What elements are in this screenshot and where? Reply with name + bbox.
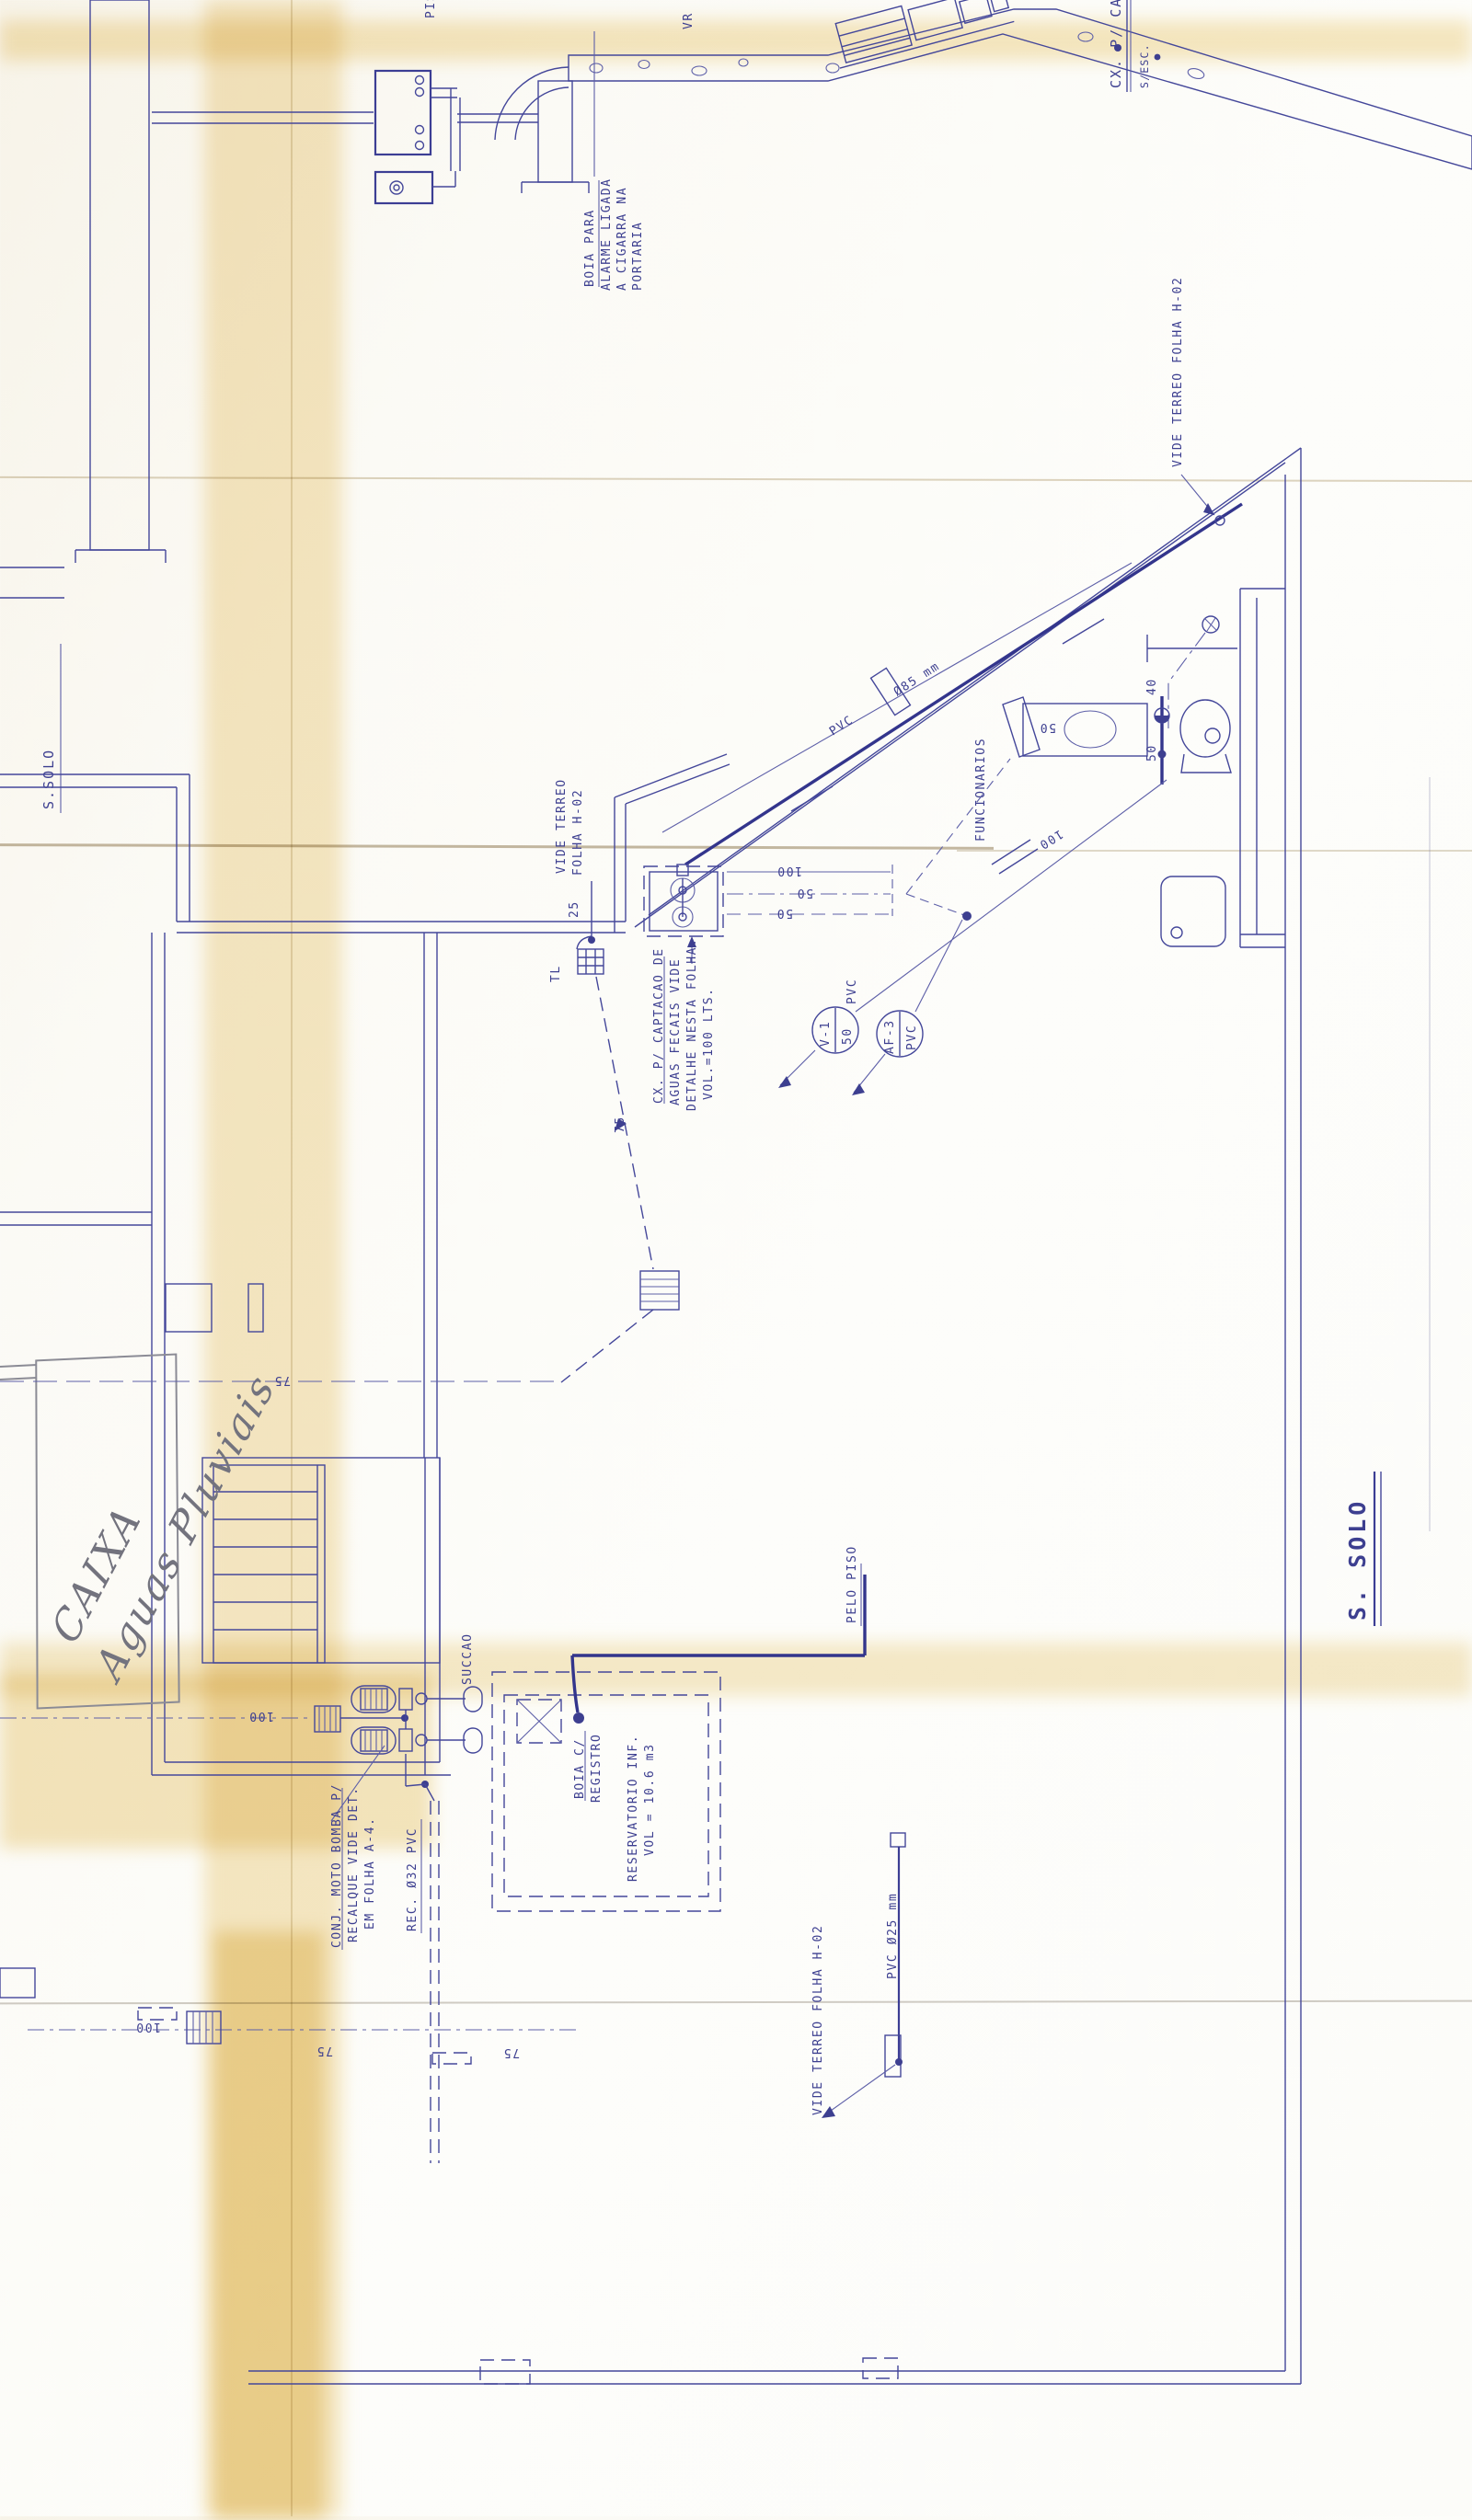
- label-corridor-75: 75: [273, 1373, 291, 1387]
- label-reservatorio-l2: VOL = 10.6 m3: [643, 1743, 657, 1856]
- label-boia-l3: A CIGARRA NA: [615, 187, 629, 291]
- motor-pump-1: [351, 1686, 427, 1712]
- label-bottom-75b: 75: [502, 2045, 520, 2059]
- tag-af3-material: PVC: [905, 1025, 919, 1050]
- reservoir: BOIA C/ REGISTRO RESERVATORIO INF. VOL =…: [492, 1545, 865, 1911]
- right-section-title: S. SOLO: [1344, 1472, 1381, 1626]
- tag-af3-name: AF-3: [883, 1019, 897, 1054]
- label-captacao-l4: VOL.=100 LTS.: [702, 987, 716, 1100]
- detail-title: CX. P/ CA: [1108, 0, 1124, 88]
- label-conj-l3: EM FOLHA A-4.: [363, 1816, 377, 1930]
- label-vide-terreo-sink-l2: FOLHA H-02: [571, 789, 585, 876]
- bathroom-funcionarios: 50 40 50 FUNCIONARIOS 100: [906, 616, 1237, 946]
- label-pvc25: PVC Ø25 mm: [886, 1893, 900, 1979]
- label-rec-pipe: REC. Ø32 PVC: [406, 1827, 420, 1931]
- label-feed-100: 100: [248, 1709, 274, 1723]
- tag-v1-material: PVC: [845, 979, 859, 1004]
- label-bottom-100: 100: [135, 2020, 161, 2033]
- label-tl: TL: [549, 965, 563, 982]
- plan-walls: [0, 448, 1430, 2384]
- pipe-tag-af3: AF-3 PVC: [852, 920, 962, 1095]
- label-branch-50a: 50: [796, 886, 813, 899]
- label-vide-terreo-bottom: VIDE TERREO FOLHA H-02: [811, 1925, 825, 2115]
- motor-pump-2: [351, 1727, 427, 1754]
- label-riser-50: 50: [1145, 744, 1159, 762]
- label-branch-50b: 50: [776, 906, 793, 920]
- bottom-piping: PVC Ø25 mm VIDE TERREO FOLHA H-02 100 75…: [28, 1833, 905, 2118]
- pipe-tag-v1: V-1 50 PVC: [778, 780, 1167, 1088]
- captation-box: CX. P/ CAPTACAO DE AGUAS FECAIS VIDE DET…: [644, 865, 723, 1111]
- label-diag-100: 100: [1036, 827, 1065, 853]
- pump-room: SUCCAO CONJ. MOTO BOMBA P/ RECALQUE VIDE…: [315, 1632, 482, 2163]
- label-captacao-l1: CX. P/ CAPTACAO DE: [652, 947, 666, 1104]
- label-captacao-l2: AGUAS FECAIS VIDE: [669, 958, 683, 1105]
- blueprint-drawing: BOIA PARA ALARME LIGADA A CIGARRA NA POR…: [0, 0, 1472, 2516]
- label-bottom-75a: 75: [316, 2044, 333, 2057]
- label-pis: PIS: [424, 0, 438, 18]
- branch-pipes: 100 50 50: [727, 864, 892, 920]
- label-reservatorio-l1: RESERVATORIO INF.: [627, 1735, 640, 1882]
- tl-drain-assembly: VIDE TERREO FOLHA H-02 25 TL: [549, 778, 604, 982]
- label-ssolo-right: S. SOLO: [1344, 1498, 1371, 1621]
- label-conj-l2: RECALQUE VIDE DET.: [347, 1786, 361, 1942]
- stairs: [202, 1458, 440, 1663]
- label-ssolo-left: S.SOLO: [40, 749, 57, 809]
- label-branch-100: 100: [776, 864, 802, 877]
- label-wc-50: 50: [1039, 720, 1056, 734]
- label-riser-40: 40: [1145, 678, 1159, 695]
- label-succao: SUCCAO: [461, 1632, 475, 1685]
- label-conj-l1: CONJ. MOTO BOMBA P/: [330, 1783, 344, 1948]
- label-vide-terreo-sink-l1: VIDE TERREO: [555, 778, 569, 874]
- label-captacao-l3: DETALHE NESTA FOLHA.: [685, 937, 699, 1111]
- detail-title-block: CX. P/ CA S/ESC.: [1108, 0, 1151, 92]
- label-boia-l4: PORTARIA: [631, 222, 645, 291]
- tag-v1-name: V-1: [819, 1021, 833, 1047]
- label-boia-registro-l2: REGISTRO: [590, 1734, 604, 1803]
- pump-detail-top: [829, 0, 1015, 68]
- label-boia-registro-l1: BOIA C/: [573, 1738, 587, 1799]
- label-vr: VR: [682, 12, 696, 29]
- label-dim-25: 25: [568, 900, 581, 918]
- pencil-annotation: CAIXA Aguas Pluviais: [0, 1353, 284, 1709]
- label-pvc85-material: PVC: [827, 713, 857, 739]
- label-boia-l1: BOIA PARA: [583, 209, 597, 287]
- label-pelo-piso: PELO PISO: [845, 1545, 859, 1623]
- tag-v1-size: 50: [841, 1027, 855, 1045]
- label-vide-terreo-top: VIDE TERREO FOLHA H-02: [1171, 277, 1185, 467]
- label-pvc85-diameter: Ø85 mm: [891, 659, 943, 699]
- scanned-blueprint-page: { "meta": { "ink_color": "#3d3f90", "pap…: [0, 0, 1472, 2516]
- top-section-detail: BOIA PARA ALARME LIGADA A CIGARRA NA POR…: [0, 0, 1472, 598]
- label-boia-l2: ALARME LIGADA: [600, 178, 614, 291]
- detail-scale: S/ESC.: [1138, 43, 1151, 88]
- label-funcionarios: FUNCIONARIOS: [974, 738, 988, 842]
